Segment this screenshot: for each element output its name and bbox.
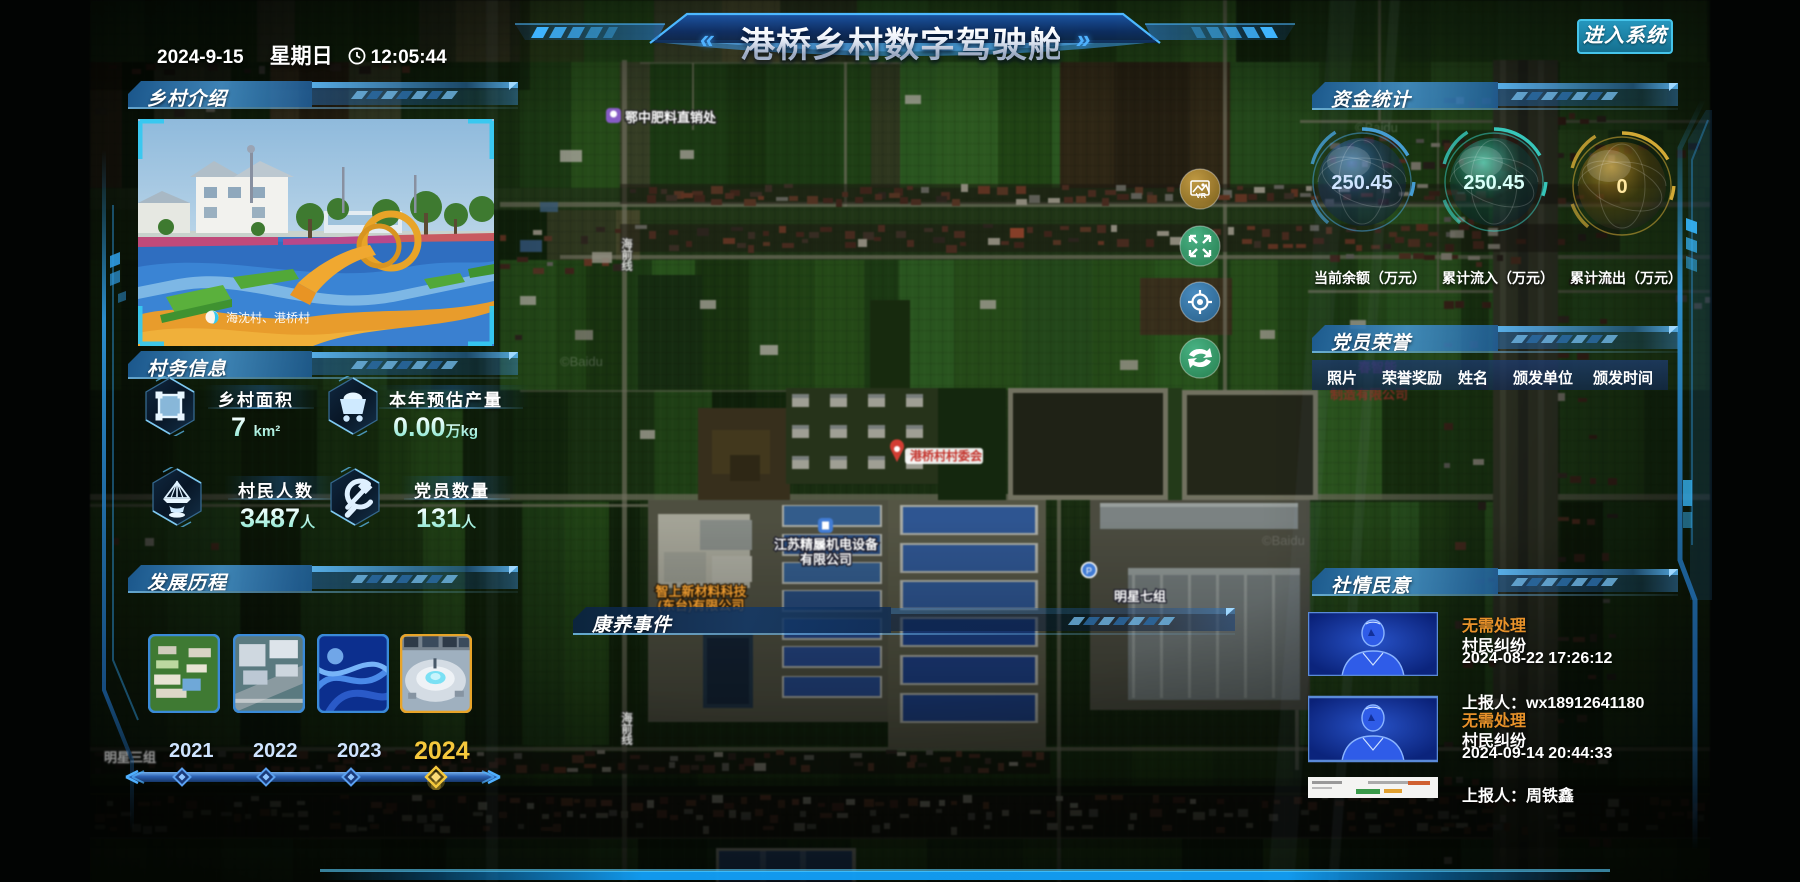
- svg-text:海沈村、港桥村: 海沈村、港桥村: [226, 310, 310, 325]
- svg-text:VR: VR: [1196, 191, 1207, 200]
- svg-text:0: 0: [1616, 176, 1627, 198]
- svg-text:250.45: 250.45: [1463, 172, 1524, 194]
- svg-text:250.45: 250.45: [1331, 172, 1392, 194]
